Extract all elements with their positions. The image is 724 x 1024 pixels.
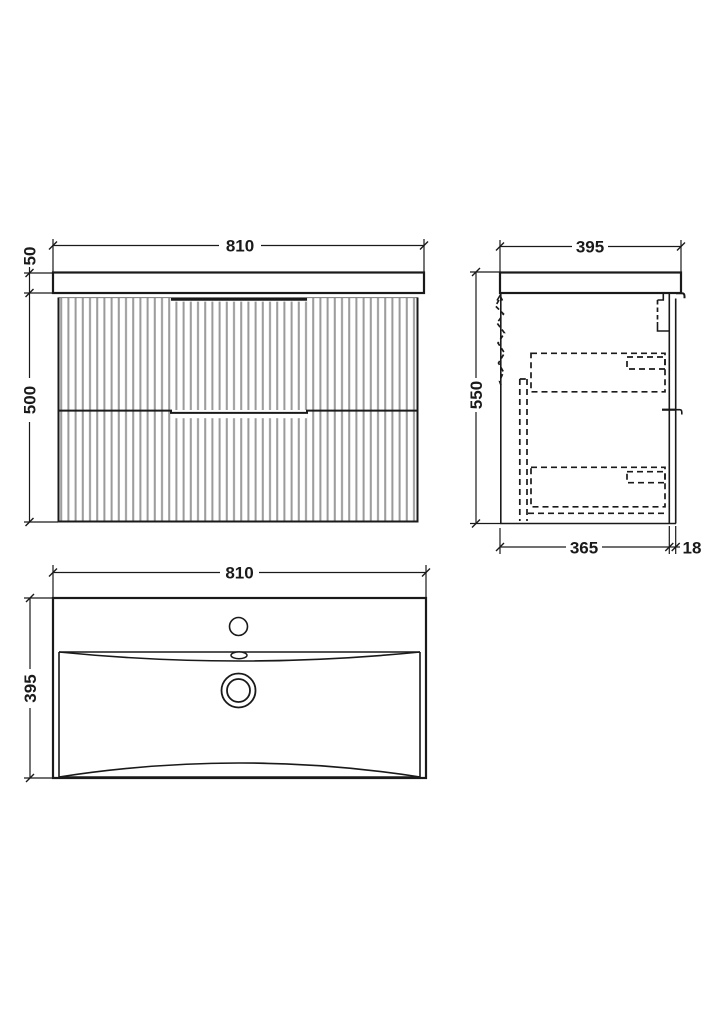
side-handle-profile-top [658,293,670,331]
side-depth-label: 395 [576,238,604,257]
vanity-dimension-drawing: 810 50 500 [0,0,724,1024]
side-countertop-drip-edge [676,293,685,298]
side-drawer-box-bottom [531,467,665,507]
front-counter-label: 50 [21,247,40,266]
side-hidden-lines [520,353,665,521]
side-plumbing-channel [520,379,527,521]
side-cabinet-outline [500,293,676,524]
side-drawer-handle-top [627,357,665,369]
front-height-label: 500 [21,386,40,414]
side-panel-thickness-label: 18 [683,539,702,558]
front-height-dimension: 500 [21,293,59,526]
basin-depth-dimension: 395 [21,594,53,782]
front-width-label: 810 [226,237,254,256]
front-counter-dimension: 50 [21,247,54,297]
basin-width-label: 810 [225,564,253,583]
basin-overflow-slot [231,652,247,659]
side-view: 395 550 [467,238,701,558]
technical-drawing-canvas: 810 50 500 [0,0,724,1024]
basin-waste-drain-inner [227,679,250,702]
basin-plan-view: 810 395 [21,564,430,783]
side-drawer-handle-bottom [627,472,665,483]
basin-inner-bowl [59,652,420,777]
basin-width-dimension: 810 [49,564,430,599]
side-handle-profile-middle [662,410,682,415]
front-cabinet [59,297,418,521]
side-height-label: 550 [467,381,486,409]
basin-tap-hole [230,618,248,636]
side-cabinet-depth-dimension: 365 [496,526,680,558]
side-cabinet-depth-label: 365 [570,539,598,558]
front-handle-recess-top [171,297,307,301]
basin-depth-label: 395 [21,674,40,702]
front-view: 810 50 500 [21,237,429,527]
front-width-dimension: 810 [49,237,428,273]
side-countertop [500,273,681,294]
front-handle-recess-bottom [171,410,307,418]
side-height-dimension: 550 [467,268,500,528]
basin-front-slope [59,763,420,777]
side-depth-dimension: 395 [496,238,685,273]
side-drawer-box-top [531,353,665,392]
front-countertop [53,273,424,294]
